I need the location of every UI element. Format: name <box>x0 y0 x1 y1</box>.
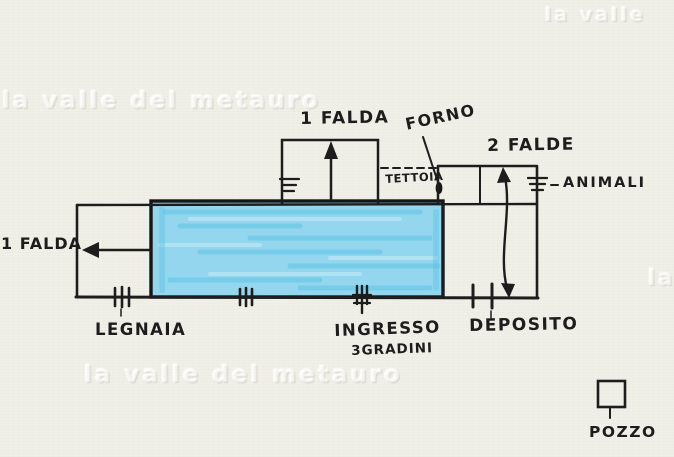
label-roof-left: 1 FALDA <box>1 236 82 252</box>
main-room <box>151 201 443 297</box>
label-roof-right: 2 FALDE <box>487 136 575 155</box>
plan-drawing <box>0 0 674 457</box>
top-wall <box>77 204 537 205</box>
hatch-deposito <box>473 284 492 308</box>
span-arrow-shaft <box>504 177 507 288</box>
label-tettoia: TETTOIA <box>385 171 444 186</box>
roof-arrow-head <box>324 141 338 159</box>
left-roof-arrow-head <box>82 242 99 258</box>
label-deposito: DEPOSITO <box>469 316 579 335</box>
span-arrow-head-bottom <box>501 283 515 298</box>
label-legnaia: LEGNAIA <box>95 322 186 339</box>
label-pozzo: POZZO <box>589 425 657 441</box>
span-arrow-head-top <box>497 167 511 183</box>
label-roof-top: 1 FALDA <box>300 109 389 128</box>
label-animali: ANIMALI <box>563 176 646 191</box>
well-square <box>598 381 625 407</box>
label-ingresso-steps: 3GRADINI <box>351 342 433 358</box>
label-ingresso: INGRESSO <box>334 319 441 339</box>
bottom-wall <box>76 297 538 298</box>
scanned-plan-page: la valle la valle del metauro la valle d… <box>0 0 674 457</box>
